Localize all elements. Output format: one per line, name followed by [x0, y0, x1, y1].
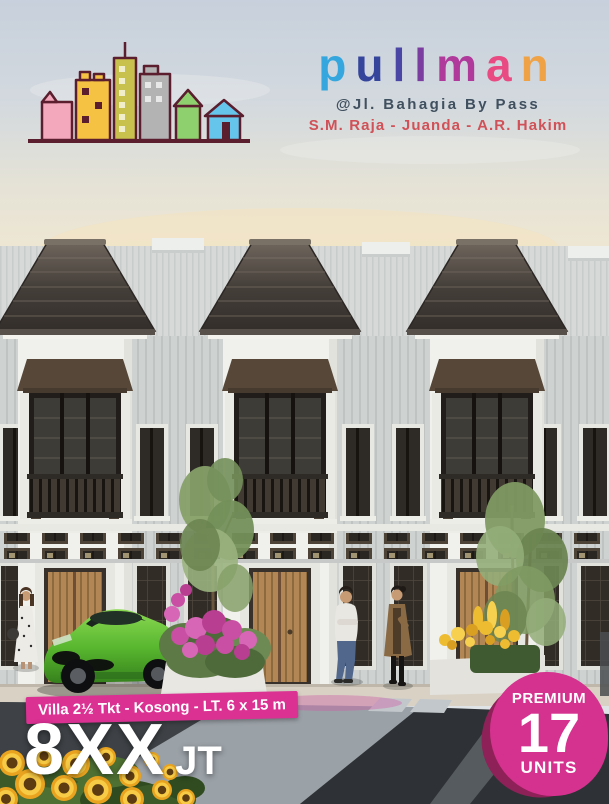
- brand-wordmark: pullman: [278, 40, 598, 91]
- brand-letter: l: [393, 39, 415, 91]
- real-estate-poster: pullman @Jl. Bahagia By Pass S.M. Raja -…: [0, 0, 609, 804]
- brand-letter: a: [486, 39, 521, 91]
- brand-letter: u: [355, 39, 392, 91]
- brand-roads: S.M. Raja - Juanda - A.R. Hakim: [278, 117, 598, 134]
- price-value: 8XX: [24, 714, 166, 786]
- badge-units-label: UNITS: [521, 758, 578, 778]
- brand-block: pullman @Jl. Bahagia By Pass S.M. Raja -…: [278, 40, 598, 134]
- brand-letter: p: [318, 39, 355, 91]
- price-unit: JT: [175, 739, 222, 784]
- badge-number: 17: [518, 707, 580, 759]
- brand-letter: l: [414, 39, 436, 91]
- brand-letter: n: [521, 39, 558, 91]
- brand-letter: m: [436, 39, 486, 91]
- price: 8XX JT: [24, 714, 222, 786]
- premium-units-badge: PREMIUM 17 UNITS: [482, 672, 609, 800]
- city-skyline-logo-icon: [26, 28, 254, 154]
- brand-location: @Jl. Bahagia By Pass: [278, 96, 598, 113]
